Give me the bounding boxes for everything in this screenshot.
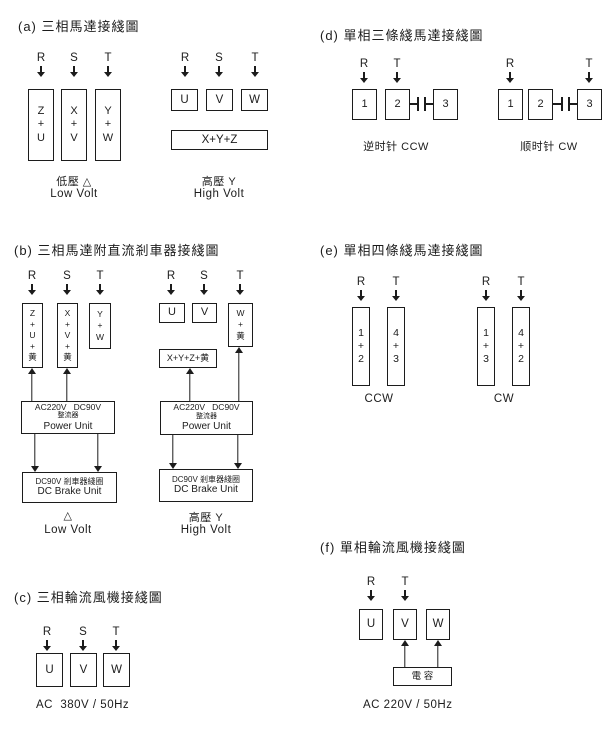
box-text: 2	[537, 98, 543, 111]
arrow-stem	[66, 373, 67, 401]
box-text: U	[367, 617, 375, 631]
section-title-d: (d) 單相三條綫馬達接綫圖	[320, 25, 484, 44]
down-arrowhead-icon	[181, 72, 189, 77]
arrowhead-icon	[235, 347, 243, 353]
box-text: DC Brake Unit	[38, 486, 102, 498]
winding-box-13: 1+3	[477, 307, 495, 386]
phase-label: S	[70, 52, 78, 64]
terminal-box-w: W	[426, 609, 450, 640]
terminal-box-v: V	[206, 89, 233, 111]
box-text: U	[180, 93, 188, 107]
box-text: AC220V DC90V	[173, 402, 239, 412]
phase-label: T	[401, 576, 408, 588]
capacitor-plate	[424, 97, 426, 111]
phase-terminal-T: T	[243, 52, 267, 77]
phase-label: T	[236, 270, 243, 282]
terminal-box-3: 3	[577, 89, 602, 120]
box-text: +	[30, 341, 35, 352]
connection-arrow-up	[63, 368, 71, 401]
terminal-box-u: U	[36, 653, 63, 687]
phase-label: R	[167, 270, 175, 282]
down-arrowhead-icon	[200, 290, 208, 295]
box-text: 3	[442, 98, 448, 111]
section-title-b: (b) 三相馬達附直流剎車器接綫圖	[14, 240, 220, 259]
terminal-box-1: 1	[498, 89, 523, 120]
down-arrowhead-icon	[360, 78, 368, 83]
box-text: 3	[483, 353, 489, 366]
capacitor-plate	[561, 97, 563, 111]
phase-label: R	[357, 276, 365, 288]
box-text: U	[37, 132, 45, 145]
box-text: 整流器	[196, 413, 217, 422]
down-arrowhead-icon	[585, 78, 593, 83]
phase-label: T	[393, 58, 400, 70]
box-text: V	[201, 306, 208, 319]
phase-terminal-T: T	[88, 270, 112, 295]
connection-arrow-up	[434, 640, 442, 667]
down-arrowhead-icon	[104, 72, 112, 77]
down-arrowhead-icon	[251, 72, 259, 77]
capacitor-symbol-icon	[553, 97, 577, 111]
phase-terminal-R: R	[173, 52, 197, 77]
box-text: W	[103, 132, 113, 145]
box-text: 整流器	[58, 412, 79, 421]
box-text: W	[96, 332, 104, 343]
box-text: 4	[518, 327, 524, 340]
box-text: U	[29, 330, 35, 341]
caption-low-volt-en: Low Volt	[0, 188, 154, 200]
box-text: W	[111, 663, 122, 677]
box-text: DC Brake Unit	[174, 484, 238, 496]
winding-box-42: 4+2	[512, 307, 530, 386]
terminal-box-u: U	[359, 609, 383, 640]
phase-label: R	[28, 270, 36, 282]
terminal-box-w: W	[241, 89, 268, 111]
phase-terminal-R: R	[29, 52, 53, 77]
box-text: 3	[586, 98, 592, 111]
terminal-box-2: 2	[528, 89, 553, 120]
connection-arrow-up	[28, 368, 36, 401]
phase-label: T	[585, 58, 592, 70]
box-text: Y	[97, 309, 103, 320]
box-text: X	[70, 105, 77, 118]
down-arrowhead-icon	[215, 72, 223, 77]
down-arrowhead-icon	[63, 290, 71, 295]
arrowhead-icon	[186, 368, 194, 374]
box-text: +	[105, 118, 111, 131]
down-arrowhead-icon	[357, 296, 365, 301]
box-text: DC90V 剎車器綫圈	[35, 477, 103, 487]
phase-terminal-T: T	[509, 276, 533, 301]
capacitor-plate	[568, 97, 570, 111]
phase-label: S	[79, 626, 87, 638]
box-text: Power Unit	[44, 421, 93, 433]
down-arrowhead-icon	[79, 646, 87, 651]
terminal-box-3: 3	[433, 89, 458, 120]
arrow-stem	[238, 352, 239, 401]
arrow-stem	[97, 434, 98, 467]
phase-label: R	[37, 52, 45, 64]
power-unit-box: AC220V DC90V整流器Power Unit	[160, 401, 253, 435]
down-arrowhead-icon	[70, 72, 78, 77]
box-text: +	[38, 118, 44, 131]
brake-unit-box: DC90V 剎車器綫圈DC Brake Unit	[22, 472, 117, 503]
phase-terminal-T: T	[104, 626, 128, 651]
phase-terminal-S: S	[55, 270, 79, 295]
arrowhead-icon	[401, 640, 409, 646]
capacitor-symbol-icon	[410, 97, 433, 111]
box-text: +	[98, 320, 103, 331]
brake-unit-box: DC90V 剎車器綫圈DC Brake Unit	[159, 469, 253, 502]
connection-arrow-down	[94, 434, 102, 472]
box-text: 2	[358, 353, 364, 366]
phase-terminal-R: R	[20, 270, 44, 295]
winding-box-yw: Y+W	[95, 89, 121, 161]
caption-cw: 顺时针 CW	[469, 138, 610, 154]
box-text: V	[70, 132, 77, 145]
winding-box-w-yellow: W+黄	[228, 303, 253, 347]
box-text: +	[358, 340, 364, 353]
box-text: Z	[30, 308, 35, 319]
box-text: U	[168, 306, 176, 319]
phase-terminal-S: S	[192, 270, 216, 295]
phase-terminal-T: T	[577, 58, 601, 83]
caption-low-volt-cn: 低壓 △	[0, 173, 154, 189]
arrowhead-icon	[28, 368, 36, 374]
down-arrowhead-icon	[43, 646, 51, 651]
box-text: U	[45, 663, 53, 677]
capacitor-lead	[569, 103, 577, 105]
phase-terminal-R: R	[35, 626, 59, 651]
terminal-box-2: 2	[385, 89, 410, 120]
box-text: DC90V 剎車器綫圈	[172, 475, 240, 485]
box-text: +	[393, 340, 399, 353]
arrow-stem	[237, 435, 238, 464]
connection-arrow-up	[235, 347, 243, 401]
phase-label: R	[360, 58, 368, 70]
box-text: +	[30, 319, 35, 330]
phase-label: S	[63, 270, 71, 282]
capacitor-plate	[417, 97, 419, 111]
box-text: W	[249, 93, 260, 107]
power-unit-box: AC220V DC90V整流器Power Unit	[21, 401, 115, 434]
box-text: V	[401, 617, 409, 631]
phase-label: T	[104, 52, 111, 64]
down-arrowhead-icon	[37, 72, 45, 77]
arrow-stem	[437, 645, 438, 667]
box-text: 黄	[28, 352, 37, 363]
caption-high-volt-en: High Volt	[139, 188, 299, 200]
down-arrowhead-icon	[392, 296, 400, 301]
connection-arrow-down	[31, 434, 39, 472]
down-arrowhead-icon	[393, 78, 401, 83]
box-text: AC220V DC90V	[35, 402, 101, 412]
arrow-stem	[31, 373, 32, 401]
down-arrowhead-icon	[517, 296, 525, 301]
box-text: Y	[104, 105, 111, 118]
caption-power-spec: AC 220V / 50Hz	[363, 699, 452, 711]
arrowhead-icon	[234, 463, 242, 469]
phase-label: R	[367, 576, 375, 588]
phase-terminal-R: R	[349, 276, 373, 301]
winding-box-xv-yellow: X+V+黄	[57, 303, 78, 368]
box-text: X	[65, 308, 71, 319]
winding-box-zu: Z+U	[28, 89, 54, 161]
phase-label: T	[251, 52, 258, 64]
box-text: V	[80, 663, 88, 677]
wiring-diagram-page: (a) 三相馬達接綫圖RSTRSTZ+UX+VY+WUVWX+Y+Z低壓 △Lo…	[0, 0, 610, 738]
phase-label: R	[506, 58, 514, 70]
caption-high-volt-cn: 高壓 Y	[139, 173, 299, 189]
box-text: +	[483, 340, 489, 353]
capacitor-lead	[426, 103, 434, 105]
phase-label: T	[392, 276, 399, 288]
phase-terminal-T: T	[385, 58, 409, 83]
phase-terminal-T: T	[96, 52, 120, 77]
box-text: 黄	[236, 331, 245, 342]
down-arrowhead-icon	[401, 596, 409, 601]
connection-arrow-up	[401, 640, 409, 667]
terminal-box-v: V	[393, 609, 417, 640]
box-text: 4	[393, 327, 399, 340]
winding-box-xv: X+V	[61, 89, 87, 161]
phase-label: T	[96, 270, 103, 282]
section-title-e: (e) 單相四條綫馬達接綫圖	[320, 240, 484, 259]
terminal-box-u: U	[159, 303, 185, 323]
phase-terminal-R: R	[474, 276, 498, 301]
connection-arrow-down	[169, 435, 177, 469]
arrow-stem	[404, 645, 405, 667]
arrow-stem	[189, 373, 190, 401]
box-text: W	[433, 617, 444, 631]
box-text: 2	[518, 353, 524, 366]
arrow-stem	[34, 434, 35, 467]
phase-label: S	[200, 270, 208, 282]
arrowhead-icon	[94, 466, 102, 472]
winding-box-zu-yellow: Z+U+黄	[22, 303, 43, 368]
phase-label: T	[112, 626, 119, 638]
phase-label: R	[482, 276, 490, 288]
box-text: V	[65, 330, 71, 341]
box-text: V	[216, 93, 224, 107]
down-arrowhead-icon	[96, 290, 104, 295]
phase-terminal-T: T	[384, 276, 408, 301]
phase-terminal-R: R	[159, 270, 183, 295]
terminal-box-w: W	[103, 653, 130, 687]
phase-terminal-S: S	[62, 52, 86, 77]
box-text: Power Unit	[182, 421, 231, 433]
arrowhead-icon	[434, 640, 442, 646]
down-arrowhead-icon	[167, 290, 175, 295]
phase-terminal-T: T	[393, 576, 417, 601]
winding-box-xyz-yellow: X+Y+Z+黄	[159, 349, 217, 368]
box-text: +	[518, 340, 524, 353]
down-arrowhead-icon	[112, 646, 120, 651]
box-text: 1	[507, 98, 513, 111]
connection-arrow-down	[234, 435, 242, 469]
caption-high-volt-en: High Volt	[126, 524, 286, 536]
terminal-box-v: V	[70, 653, 97, 687]
down-arrowhead-icon	[506, 78, 514, 83]
box-text: +	[238, 319, 243, 330]
winding-box-yw: Y+W	[89, 303, 111, 349]
arrowhead-icon	[31, 466, 39, 472]
terminal-box-1: 1	[352, 89, 377, 120]
box-text: X+Y+Z	[202, 133, 238, 147]
box-text: W	[236, 308, 244, 319]
winding-box-43: 4+3	[387, 307, 405, 386]
down-arrowhead-icon	[482, 296, 490, 301]
down-arrowhead-icon	[28, 290, 36, 295]
caption-power-spec: AC 380V / 50Hz	[36, 699, 129, 711]
phase-label: T	[517, 276, 524, 288]
arrow-stem	[172, 435, 173, 464]
box-text: X+Y+Z+黄	[167, 353, 209, 364]
box-text: 電 容	[412, 671, 434, 683]
section-title-c: (c) 三相輪流風機接綫圖	[14, 587, 163, 606]
box-text: 黄	[63, 352, 72, 363]
phase-label: R	[43, 626, 51, 638]
box-text: +	[71, 118, 77, 131]
down-arrowhead-icon	[367, 596, 375, 601]
box-text: 1	[358, 327, 364, 340]
down-arrowhead-icon	[236, 290, 244, 295]
winding-box-xyz: X+Y+Z	[171, 130, 268, 150]
phase-terminal-R: R	[359, 576, 383, 601]
caption-ccw: 逆时针 CCW	[316, 138, 476, 154]
box-text: 2	[394, 98, 400, 111]
terminal-box-u: U	[171, 89, 198, 111]
arrowhead-icon	[169, 463, 177, 469]
box-text: Z	[38, 105, 45, 118]
box-text: 1	[361, 98, 367, 111]
capacitor-box: 電 容	[393, 667, 452, 686]
phase-terminal-T: T	[228, 270, 252, 295]
section-title-a: (a) 三相馬達接綫圖	[18, 16, 140, 35]
winding-box-12: 1+2	[352, 307, 370, 386]
caption-cw: CW	[424, 393, 584, 405]
arrowhead-icon	[63, 368, 71, 374]
phase-terminal-S: S	[207, 52, 231, 77]
terminal-box-v: V	[192, 303, 217, 323]
connection-arrow-up	[186, 368, 194, 401]
box-text: 3	[393, 353, 399, 366]
box-text: +	[65, 341, 70, 352]
phase-terminal-S: S	[71, 626, 95, 651]
section-title-f: (f) 單相輪流風機接綫圖	[320, 537, 466, 556]
phase-label: S	[215, 52, 223, 64]
caption-high-volt-cn: 高壓 Y	[126, 509, 286, 525]
box-text: 1	[483, 327, 489, 340]
phase-label: R	[181, 52, 189, 64]
phase-terminal-R: R	[352, 58, 376, 83]
box-text: +	[65, 319, 70, 330]
phase-terminal-R: R	[498, 58, 522, 83]
